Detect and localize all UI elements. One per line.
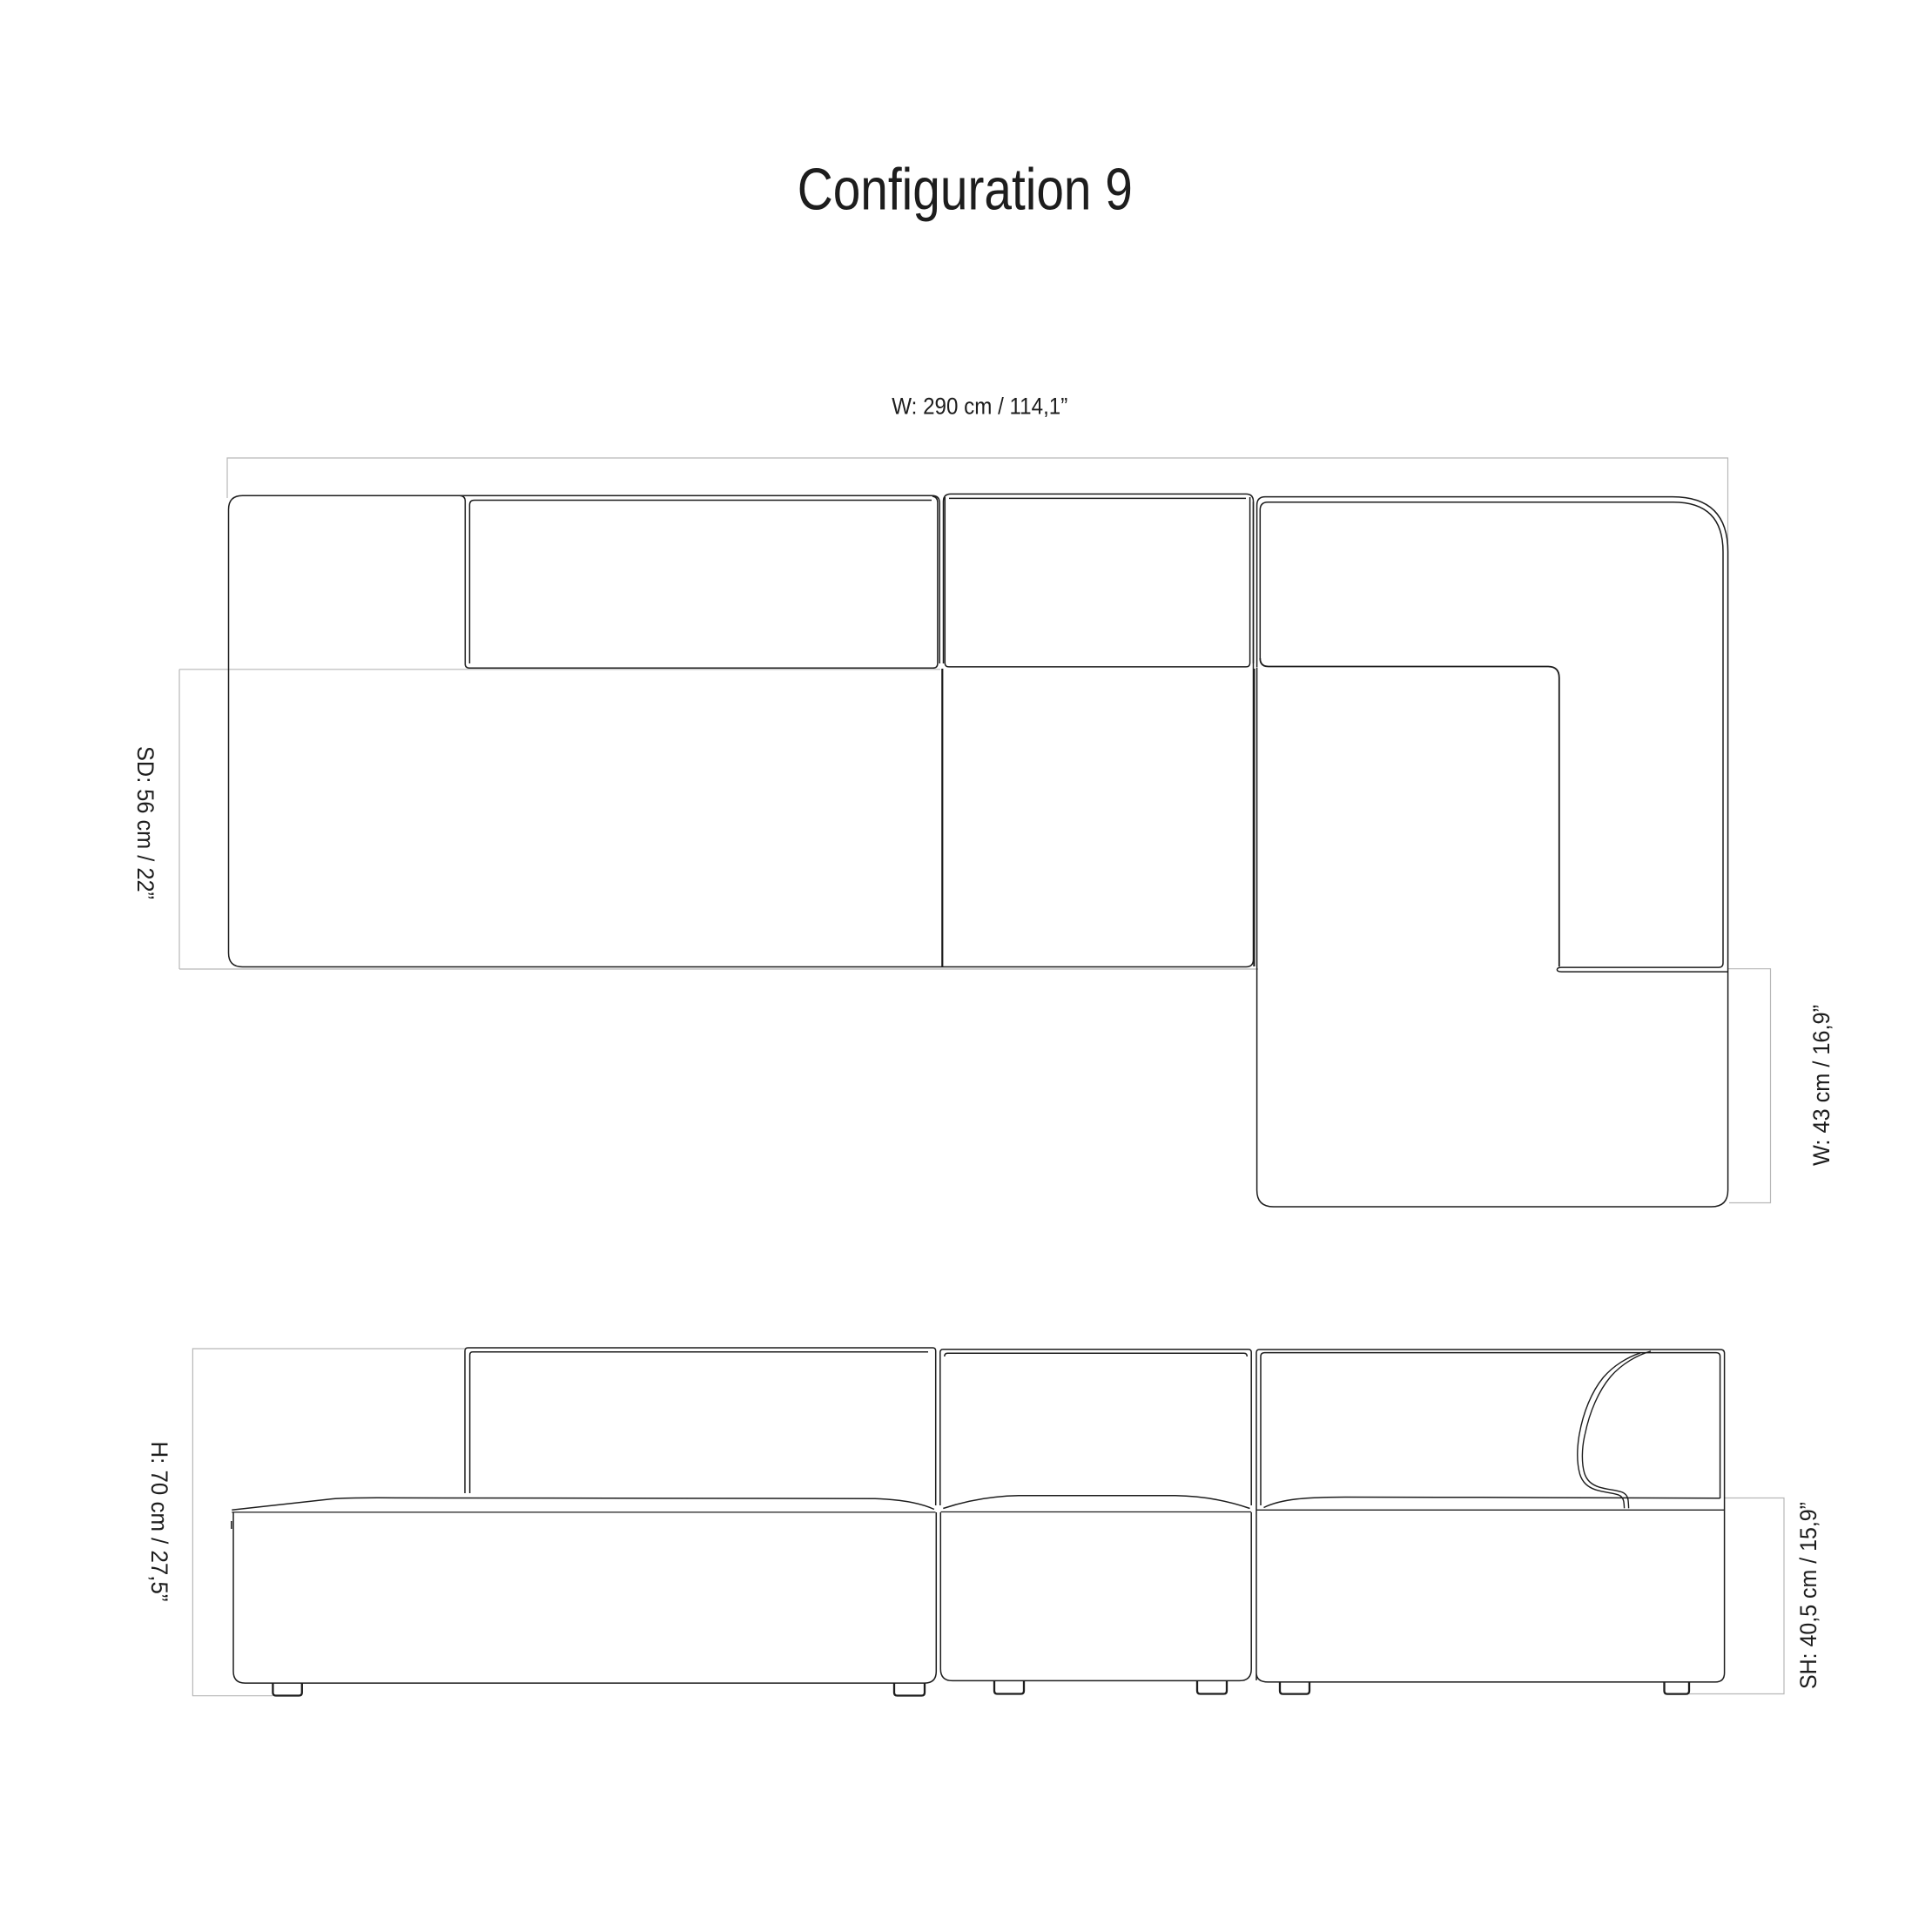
svg-text:SH: 40,5 cm / 15,9”: SH: 40,5 cm / 15,9” [1795,1502,1821,1689]
svg-text:Configuration 9: Configuration 9 [798,157,1133,223]
svg-text:SD: 56 cm / 22”: SD: 56 cm / 22” [132,746,158,899]
svg-text:W: 290 cm / 114,1”: W: 290 cm / 114,1” [892,394,1067,420]
svg-text:H: 70 cm / 27,5”: H: 70 cm / 27,5” [146,1442,172,1602]
svg-text:W: 43 cm / 16,9”: W: 43 cm / 16,9” [1808,1005,1834,1166]
